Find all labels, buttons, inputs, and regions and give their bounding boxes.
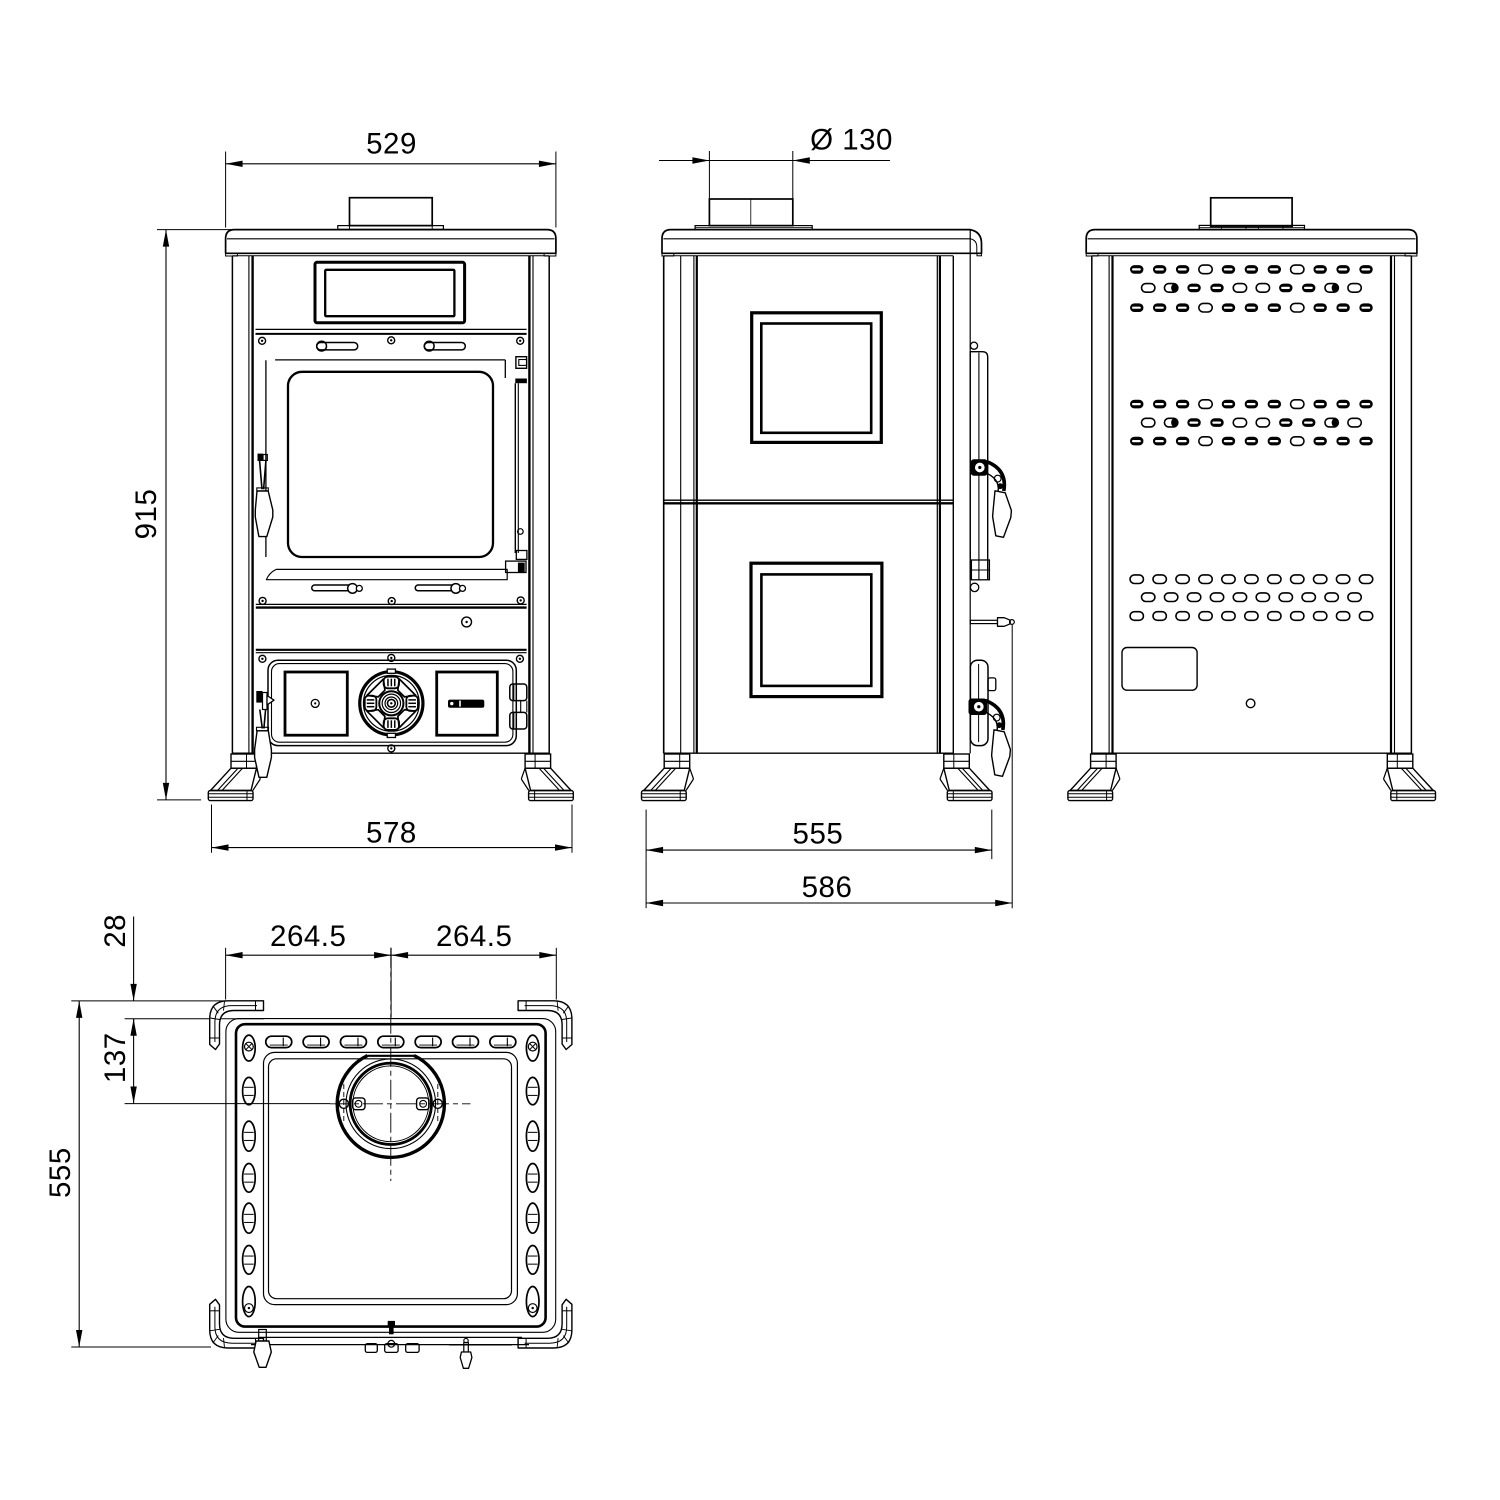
svg-text:915: 915 — [130, 489, 163, 540]
svg-text:28: 28 — [99, 914, 132, 948]
svg-text:578: 578 — [366, 817, 417, 850]
svg-text:Ø 130: Ø 130 — [810, 124, 893, 157]
svg-text:264.5: 264.5 — [270, 920, 346, 953]
svg-text:586: 586 — [802, 871, 853, 904]
svg-text:555: 555 — [44, 1147, 77, 1198]
svg-text:555: 555 — [793, 817, 844, 850]
svg-text:529: 529 — [366, 128, 417, 161]
svg-text:264.5: 264.5 — [436, 920, 512, 953]
svg-text:137: 137 — [99, 1032, 132, 1083]
